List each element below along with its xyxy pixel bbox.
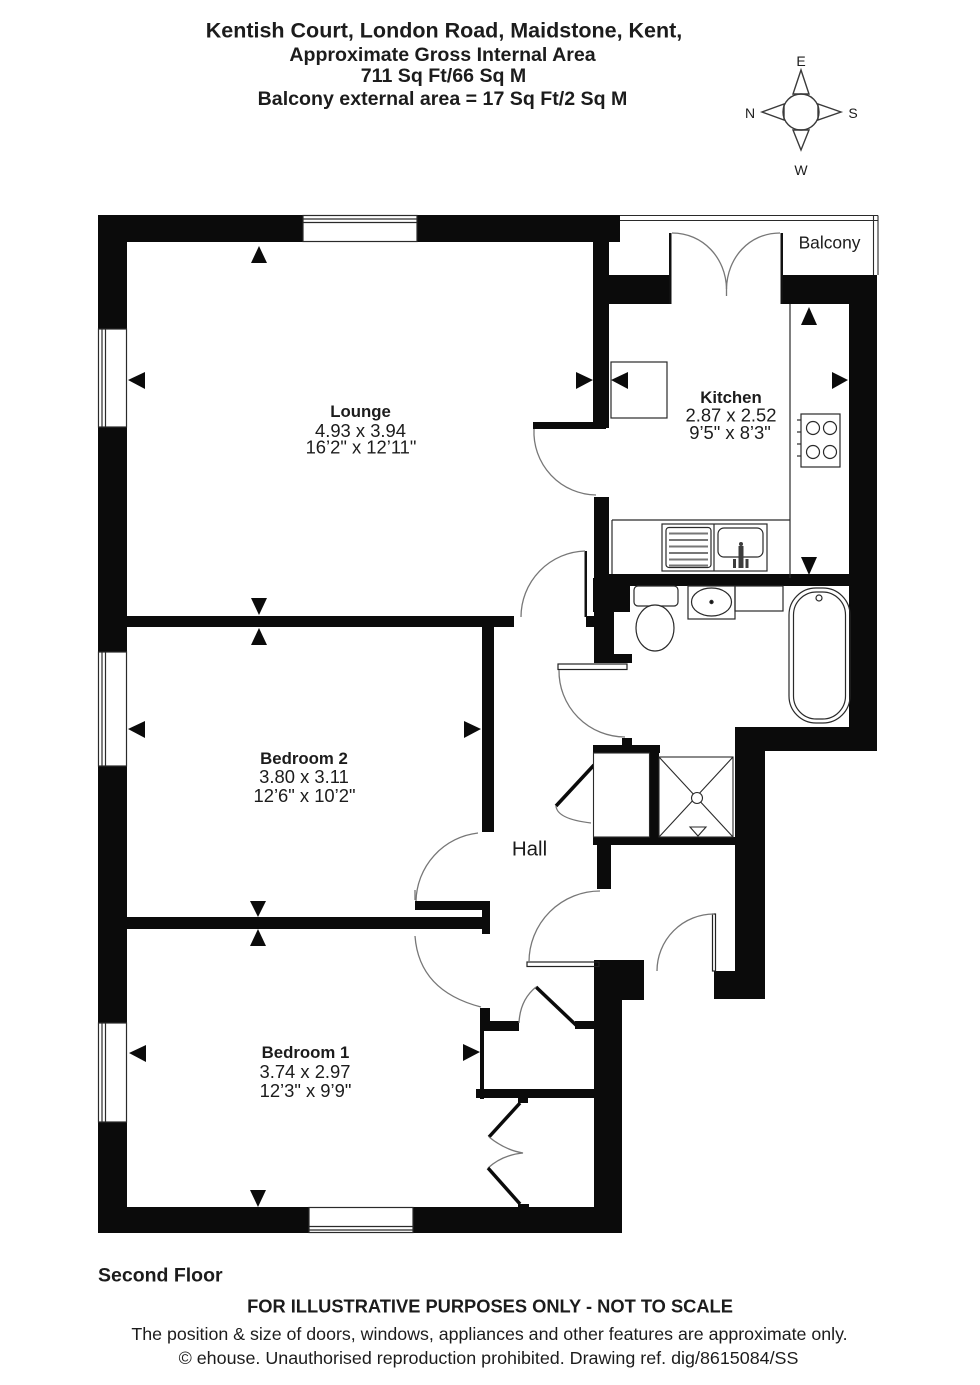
svg-text:9’5" x 8’3": 9’5" x 8’3" — [689, 422, 771, 443]
svg-text:12’6" x 10’2": 12’6" x 10’2" — [253, 785, 355, 806]
svg-text:Balcony: Balcony — [799, 233, 861, 253]
svg-text:Second Floor: Second Floor — [98, 1265, 223, 1287]
svg-text:Balcony external area = 17 Sq: Balcony external area = 17 Sq Ft/2 Sq M — [258, 88, 628, 110]
svg-text:3.80 x 3.11: 3.80 x 3.11 — [259, 766, 349, 787]
svg-text:FOR ILLUSTRATIVE PURPOSES ONLY: FOR ILLUSTRATIVE PURPOSES ONLY - NOT TO … — [247, 1296, 733, 1317]
svg-text:Approximate Gross Internal Are: Approximate Gross Internal Area — [289, 44, 596, 66]
svg-text:N: N — [745, 105, 755, 121]
svg-text:Lounge: Lounge — [330, 402, 391, 421]
svg-text:3.74 x 2.97: 3.74 x 2.97 — [259, 1061, 350, 1082]
svg-text:Bedroom 1: Bedroom 1 — [262, 1043, 350, 1062]
svg-text:© ehouse. Unauthorised reprodu: © ehouse. Unauthorised reproduction proh… — [179, 1348, 799, 1368]
svg-text:S: S — [848, 105, 857, 121]
svg-text:Kentish Court, London Road, Ma: Kentish Court, London Road, Maidstone, K… — [206, 19, 683, 43]
svg-text:Hall: Hall — [512, 838, 547, 861]
svg-text:16’2" x 12’11": 16’2" x 12’11" — [306, 437, 417, 458]
svg-text:12’3" x 9’9": 12’3" x 9’9" — [260, 1080, 352, 1101]
svg-text:E: E — [796, 53, 805, 69]
svg-text:711 Sq Ft/66 Sq M: 711 Sq Ft/66 Sq M — [361, 65, 527, 87]
svg-text:The position & size of doors,: The position & size of doors, windows, a… — [131, 1324, 847, 1344]
svg-text:W: W — [794, 162, 808, 178]
